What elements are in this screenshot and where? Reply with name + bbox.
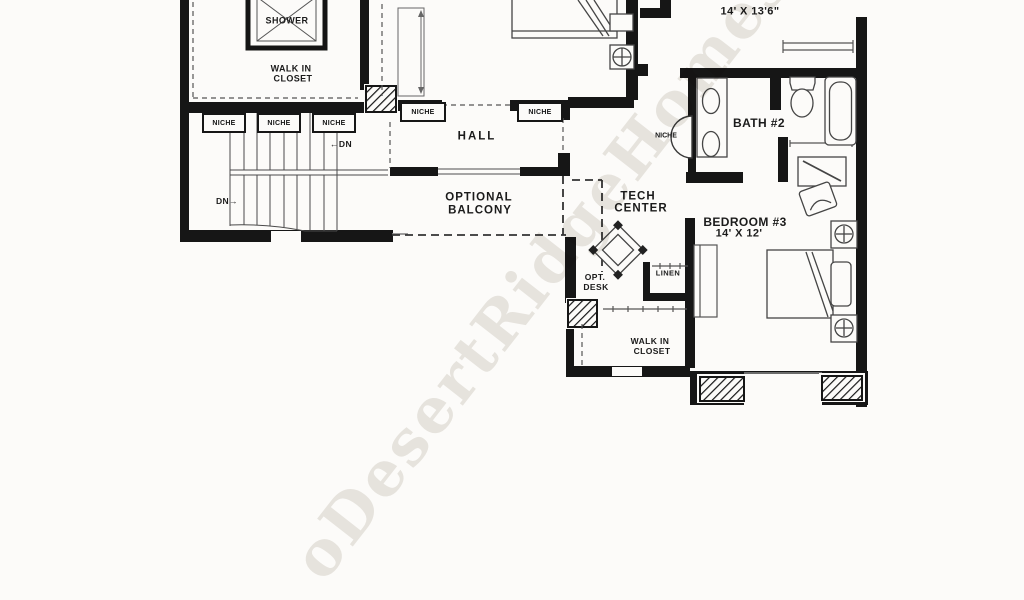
walk-in-closet-bed3-label-line2: CLOSET <box>634 347 671 356</box>
niche-box: NICHE <box>400 102 446 122</box>
niche-label: NICHE <box>655 133 677 140</box>
plan-linework <box>0 0 1024 600</box>
niche-box: NICHE <box>517 102 563 122</box>
shower-label: SHOWER <box>266 17 309 26</box>
bedroom2-label: BEDROOM #2 <box>708 0 791 1</box>
bath2-label: BATH #2 <box>733 117 785 129</box>
niche-box: NICHE <box>312 113 356 133</box>
dn-arrow-label-lower: DN→ <box>216 197 238 206</box>
niche-label: NICHE <box>528 109 551 116</box>
linen-label: LINEN <box>656 269 681 277</box>
walk-in-closet-top-label-line2: CLOSET <box>274 75 313 84</box>
walls <box>180 0 868 407</box>
walk-in-closet-top-label-line1: WALK IN <box>271 65 312 74</box>
dn-arrow-label-upper: ←DN <box>330 140 352 149</box>
walk-in-closet-bed3-label-line1: WALK IN <box>631 337 670 346</box>
niche-box: NICHE <box>202 113 246 133</box>
bathtub <box>825 77 856 145</box>
toilet <box>790 77 815 117</box>
optional-balcony-label-line2: BALCONY <box>448 205 512 217</box>
bedroom3-label: BEDROOM #3 <box>703 216 786 228</box>
floor-plan: SHOWER WALK IN CLOSET HALL OPTIONAL BALC… <box>0 0 1024 600</box>
optional-balcony-label-line1: OPTIONAL <box>445 192 512 204</box>
dashed-lines <box>193 2 582 366</box>
niche-box: NICHE <box>257 113 301 133</box>
niche-label: NICHE <box>322 120 345 127</box>
bed-bedroom3 <box>767 221 857 342</box>
staircase <box>230 113 388 231</box>
tech-center-label-line1: TECH <box>620 191 655 203</box>
desk-and-chair <box>798 157 846 217</box>
hall-label: HALL <box>458 131 497 143</box>
nightstand-bedroom2 <box>610 45 634 69</box>
opt-desk-label-line1: OPT. <box>585 273 606 282</box>
niche-label: NICHE <box>267 120 290 127</box>
opt-desk-label-line2: DESK <box>583 283 608 292</box>
bath-vanity <box>697 78 727 157</box>
bedroom2-dims: 14' X 13'6" <box>721 7 780 18</box>
wall-openings <box>271 100 822 405</box>
niche-label: NICHE <box>411 109 434 116</box>
bedroom3-dims: 14' X 12' <box>716 229 763 240</box>
bed-bedroom2 <box>512 0 633 38</box>
bedroom3-closet <box>694 245 717 317</box>
niche-label: NICHE <box>212 120 235 127</box>
dimension-line <box>398 8 424 96</box>
tech-center-label-line2: CENTER <box>614 203 667 215</box>
